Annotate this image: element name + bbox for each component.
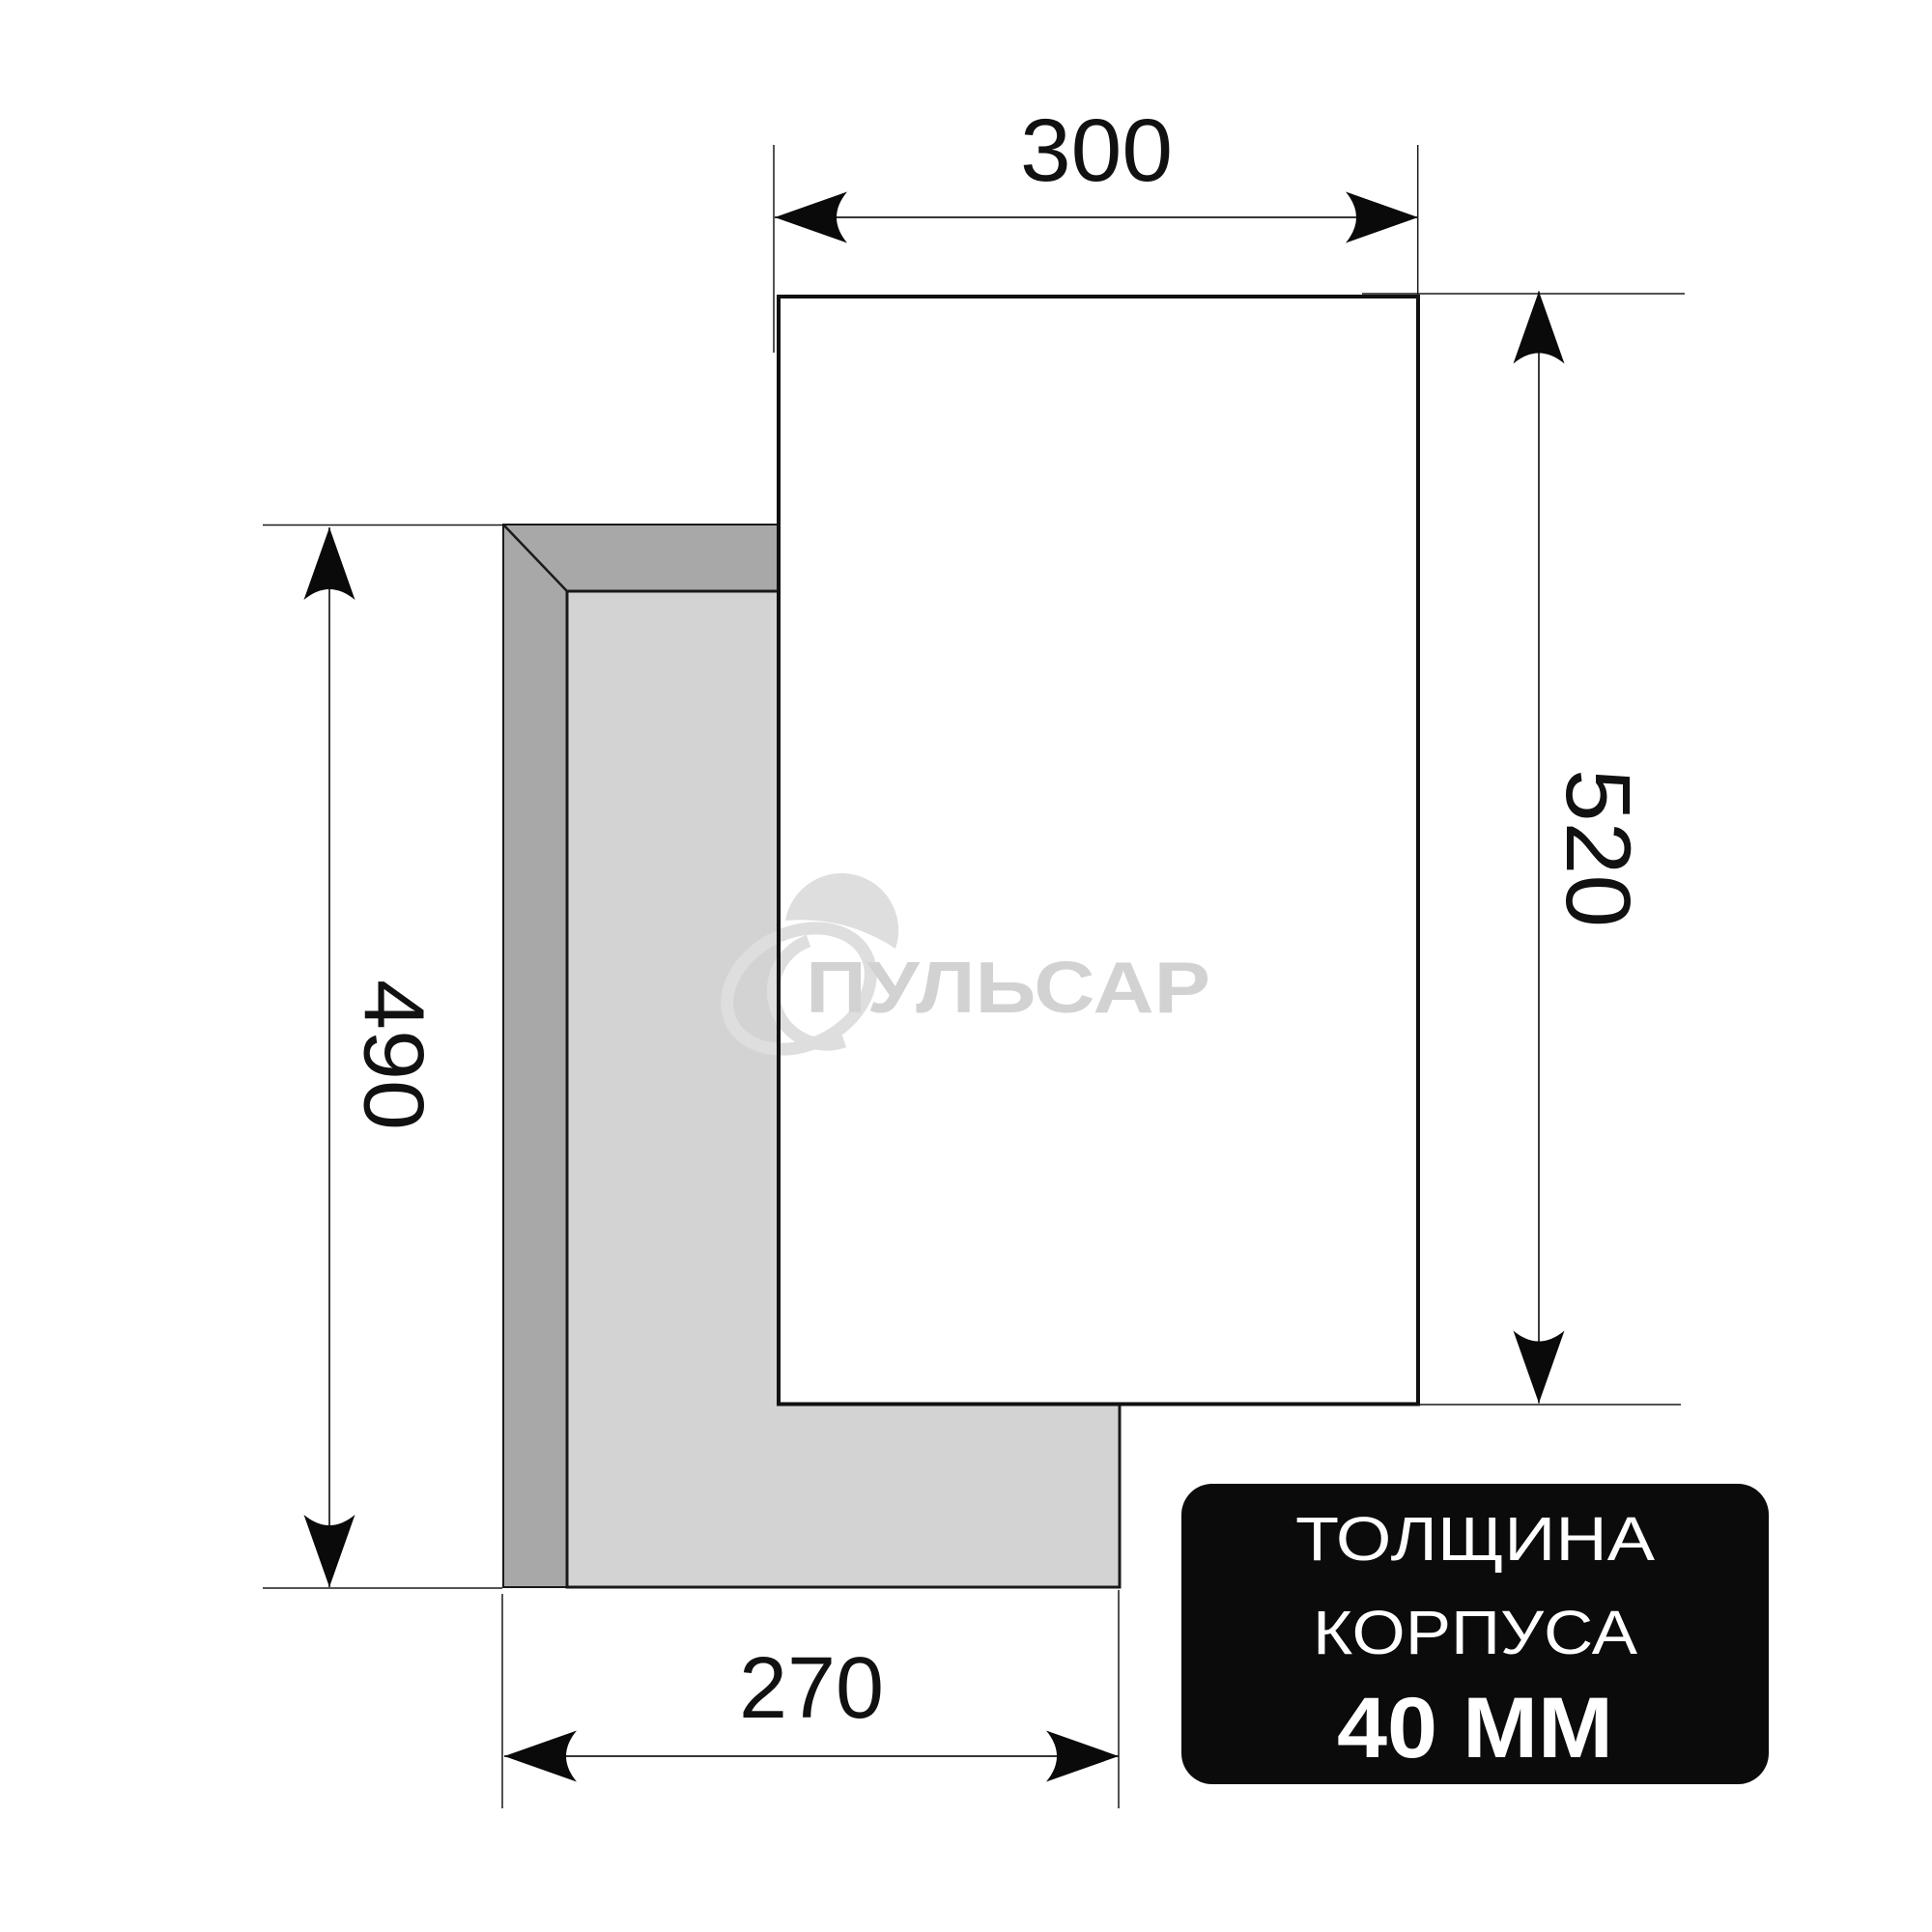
svg-text:КОРПУСА: КОРПУСА [1313, 1598, 1637, 1667]
svg-text:ПУЛЬСАР: ПУЛЬСАР [806, 947, 1210, 1028]
svg-text:490: 490 [347, 980, 442, 1130]
svg-text:520: 520 [1547, 769, 1649, 927]
svg-text:270: 270 [739, 1640, 884, 1737]
svg-text:300: 300 [1020, 101, 1173, 200]
svg-text:ТОЛЩИНА: ТОЛЩИНА [1295, 1504, 1655, 1574]
svg-text:40 ММ: 40 ММ [1337, 1679, 1613, 1776]
